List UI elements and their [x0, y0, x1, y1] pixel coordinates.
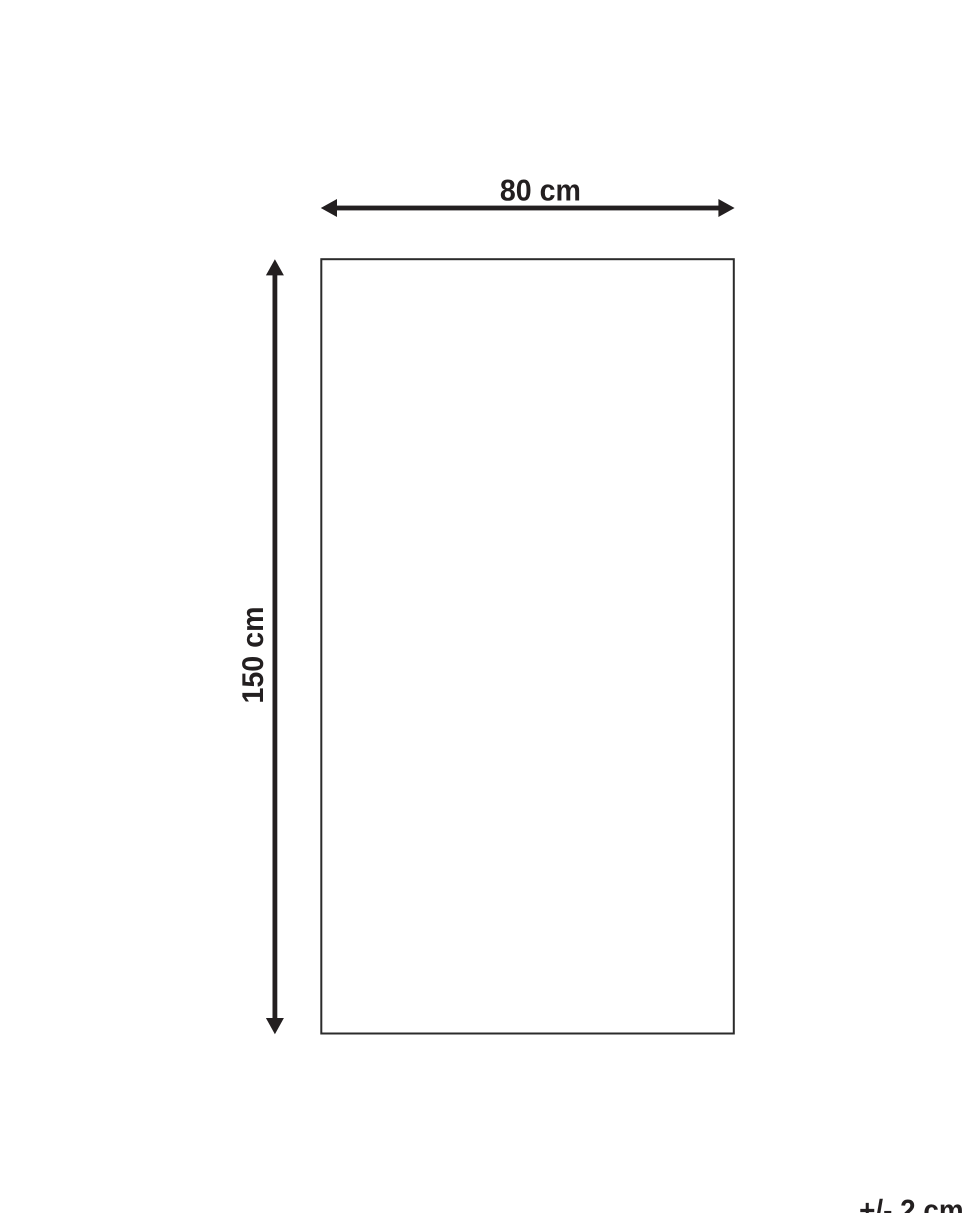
svg-text:+/- 2 cm: +/- 2 cm: [859, 1195, 964, 1213]
svg-text:80 cm: 80 cm: [500, 174, 581, 207]
svg-text:150 cm: 150 cm: [237, 607, 270, 704]
